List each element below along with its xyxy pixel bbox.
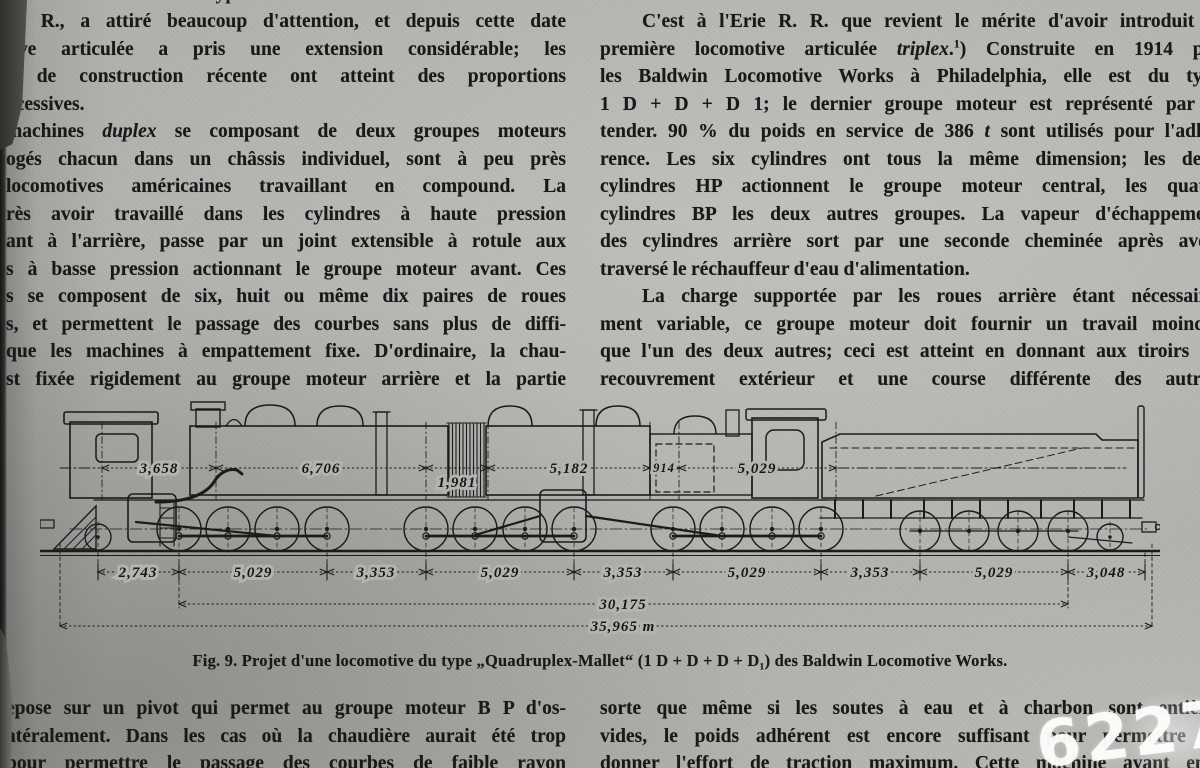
text-line: st fixée rigidement au groupe moteur arr… [6,366,566,394]
main-rods [136,516,722,536]
text-line: des cylindres arrière sort par une secon… [600,228,1200,256]
dim-label: 3,353 [850,565,890,581]
text-column-bottom-left: epose sur un pivot qui permet au groupe … [6,695,566,768]
dim-label: 5,029 [728,565,767,581]
text-line: pour permettre le passage des courbes de… [6,750,566,768]
text-line: xcessives. [6,91,566,119]
bell [226,420,242,427]
dim-label-total-wheelbase: 30,175 [598,597,646,613]
dim-label: 6,706 [302,461,341,477]
figure-caption: Fig. 9. Projet d'une locomotive du type … [0,651,1200,671]
text-line: s se composent de six, huit ou même dix … [6,283,566,311]
text-line: machines duplex se composant de deux gro… [6,118,566,146]
text-line: C'est à l'Erie R. R. que revient le méri… [600,8,1200,36]
dim-label: 2,743 [118,565,158,581]
tender-body [822,434,1138,498]
text-line: ment variable, ce groupe moteur doit fou… [600,311,1200,339]
dim-label-total-length: 35,965 m [590,619,656,635]
text-line: locomotives américaines travaillant en c… [6,173,566,201]
steam-dome-3 [488,406,532,426]
text-line: ogés chacun dans un châssis individuel, … [6,146,566,174]
dim-label: 5,182 [550,461,589,477]
text-line: que les machines à empattement fixe. D'o… [6,338,566,366]
text-line: ant à l'arrière, passe par un joint exte… [6,228,566,256]
steam-dome-4 [596,406,640,426]
dim-label: 3,353 [356,565,396,581]
steam-dome-1 [245,405,295,426]
clipped-top-line: Cette machine du type [58,0,578,5]
dim-label: 914 [653,461,675,475]
dim-label: 5,029 [234,565,273,581]
steam-dome-5 [674,416,716,434]
text-line: rès avoir travaillé dans les cylindres à… [6,201,566,229]
text-line: R. R., a attiré beaucoup d'attention, et… [6,8,566,36]
text-line: tive articulée a pris une extension cons… [6,36,566,64]
stand-pipe-1 [376,412,387,495]
stand-pipe-2 [583,410,594,495]
tender-equalizer [910,531,1132,543]
tender-handrail [1138,406,1144,498]
dim-label: 5,029 [481,565,520,581]
text-line: s de construction récente ont atteint de… [6,63,566,91]
text-line: 1 D + D + D 1; le dernier groupe moteur … [600,91,1200,119]
text-line: cylindres HP actionnent le groupe moteur… [600,173,1200,201]
dim-label: 3,353 [603,565,643,581]
text-column-top-right: C'est à l'Erie R. R. que revient le méri… [600,8,1200,393]
text-line: s à basse pression actionnant le groupe … [6,256,566,284]
text-line: tender. 90 % du poids en service de 386 … [600,118,1200,146]
text-line: recouvrement extérieur et une course dif… [600,366,1200,394]
dim-label: 3,048 [1086,565,1126,581]
text-column-top-left: R. R., a attiré beaucoup d'attention, et… [6,8,566,393]
text-line: s, et permettent le passage des courbes … [6,311,566,339]
extension-dashes [60,544,1152,628]
tender-frame-posts [835,500,1130,518]
text-line: que l'un des deux autres; ceci est attei… [600,338,1200,366]
text-line: traversé le réchauffeur d'eau d'alimenta… [600,256,1200,284]
text-line: première locomotive articulée triplex.1)… [600,36,1200,64]
text-line: La charge supportée par les roues arrièr… [600,283,1200,311]
second-chimney [726,410,739,436]
front-coupler [40,520,54,528]
text-line: epose sur un pivot qui permet au groupe … [6,695,566,723]
text-line: cylindres BP les deux autres groupes. La… [600,201,1200,229]
steam-dome-2 [317,406,363,426]
tender-coal-slope-dashed [876,448,1082,496]
rear-buffer [1142,522,1156,532]
text-line: rence. Les six cylindres ont tous la mêm… [600,146,1200,174]
dim-label: 5,029 [975,565,1014,581]
locomotive-figure: 3,658 6,706 1,981 5,182 914 5,029 2,743 … [40,396,1160,646]
dim-label: 1,981 [438,475,477,491]
text-line: atéralement. Dans les cas où la chaudièr… [6,723,566,751]
text-line: les Baldwin Locomotive Works à Philadelp… [600,63,1200,91]
dim-label: 3,658 [139,461,179,477]
scanned-page: Cette machine du type R. R., a attiré be… [0,0,1200,768]
dim-label: 5,029 [738,461,777,477]
